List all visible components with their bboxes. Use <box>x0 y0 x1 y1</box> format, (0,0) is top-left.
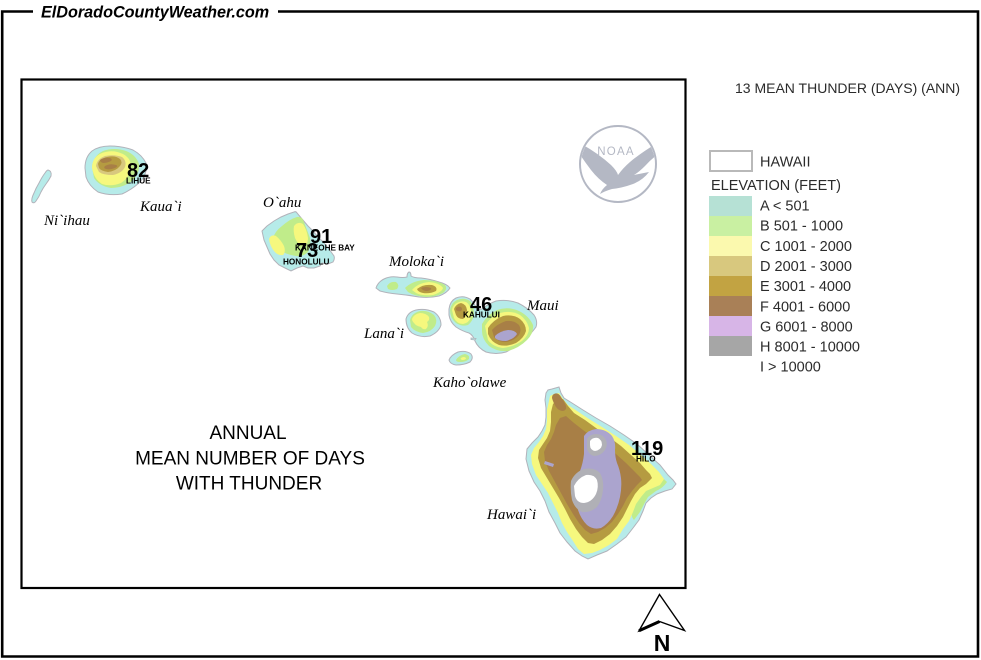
svg-text:Lana`i: Lana`i <box>363 326 404 342</box>
svg-text:Kaho`olawe: Kaho`olawe <box>432 375 507 391</box>
svg-text:G 6001 - 8000: G 6001 - 8000 <box>760 320 853 336</box>
svg-text:E 3001 - 4000: E 3001 - 4000 <box>760 279 851 295</box>
svg-text:Hawai`i: Hawai`i <box>486 507 536 523</box>
svg-text:O`ahu: O`ahu <box>263 195 301 211</box>
svg-text:A < 501: A < 501 <box>760 199 810 215</box>
svg-text:LIHUE: LIHUE <box>126 177 151 186</box>
svg-text:B 501 - 1000: B 501 - 1000 <box>760 219 843 235</box>
svg-text:KAHULUI: KAHULUI <box>463 311 500 320</box>
svg-text:MEAN NUMBER OF DAYS: MEAN NUMBER OF DAYS <box>135 449 365 470</box>
svg-text:I > 10000: I > 10000 <box>760 360 821 376</box>
svg-text:HILO: HILO <box>636 455 656 464</box>
svg-text:NOAA: NOAA <box>597 146 634 158</box>
svg-text:D 2001 - 3000: D 2001 - 3000 <box>760 259 852 275</box>
svg-text:Maui: Maui <box>526 298 559 314</box>
svg-text:ANNUAL: ANNUAL <box>209 423 286 444</box>
svg-text:ElDoradoCountyWeather.com: ElDoradoCountyWeather.com <box>41 3 269 21</box>
svg-text:H 8001 - 10000: H 8001 - 10000 <box>760 340 860 356</box>
svg-text:Ni`ihau: Ni`ihau <box>43 213 90 229</box>
svg-text:Kaua`i: Kaua`i <box>139 199 182 215</box>
svg-text:N: N <box>654 630 671 656</box>
svg-text:13 MEAN THUNDER (DAYS) (ANN): 13 MEAN THUNDER (DAYS) (ANN) <box>735 80 960 96</box>
svg-text:HONOLULU: HONOLULU <box>283 258 329 267</box>
svg-text:ELEVATION (FEET): ELEVATION (FEET) <box>711 178 841 194</box>
svg-text:HAWAII: HAWAII <box>760 155 810 171</box>
svg-text:Moloka`i: Moloka`i <box>388 254 444 270</box>
svg-text:F 4001 - 6000: F 4001 - 6000 <box>760 300 850 316</box>
svg-text:WITH THUNDER: WITH THUNDER <box>176 474 322 495</box>
svg-text:C 1001 - 2000: C 1001 - 2000 <box>760 239 852 255</box>
